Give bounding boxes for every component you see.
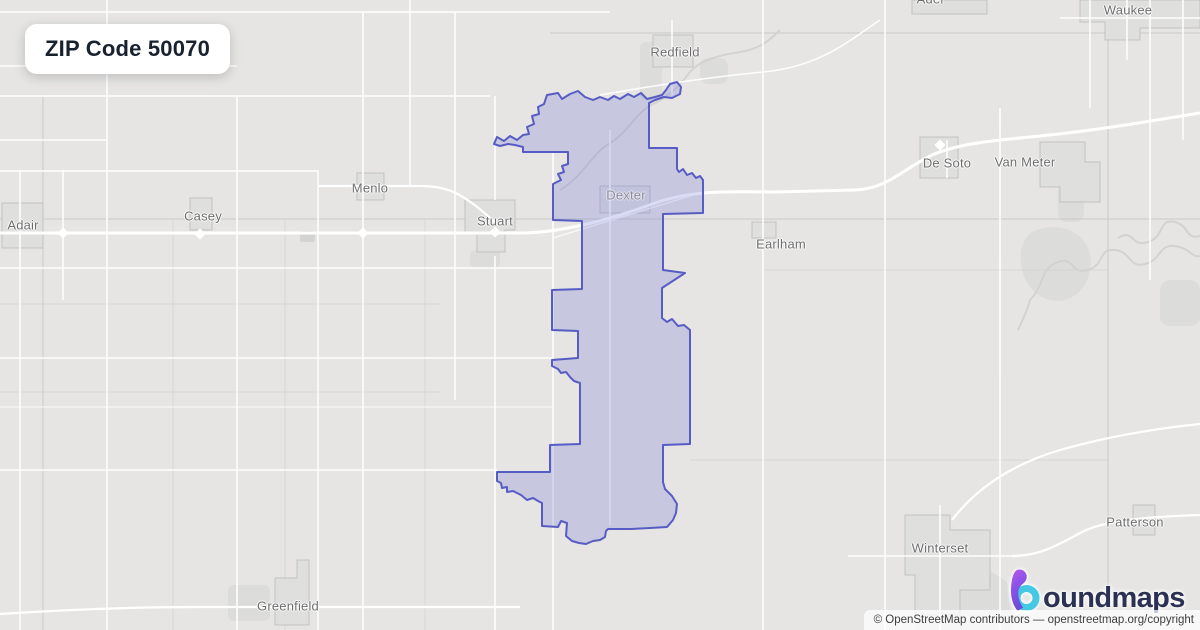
boundmaps-logo-mark <box>1010 569 1042 612</box>
city-label-adair: Adair <box>7 218 38 233</box>
city-label-stuart: Stuart <box>477 214 513 229</box>
city-label-redfield: Redfield <box>650 45 699 60</box>
city-label-van-meter: Van Meter <box>995 155 1056 170</box>
city-label-greenfield: Greenfield <box>257 599 319 614</box>
boundmaps-logo-text: oundmaps <box>1043 584 1185 613</box>
zip-code-title-badge: ZIP Code 50070 <box>25 24 230 74</box>
city-label-dexter: Dexter <box>606 188 646 203</box>
city-label-waukee: Waukee <box>1104 3 1152 18</box>
city-label-adel: Adel <box>917 0 944 7</box>
map-screenshot: Adel Waukee Redfield De Soto Van Meter M… <box>0 0 1200 630</box>
boundmaps-logo: oundmaps <box>1010 569 1185 612</box>
city-label-casey: Casey <box>184 209 222 224</box>
map-canvas <box>0 0 1200 630</box>
city-label-earlham: Earlham <box>756 237 806 252</box>
city-label-patterson: Patterson <box>1106 515 1163 530</box>
osm-attribution: © OpenStreetMap contributors — openstree… <box>864 610 1200 630</box>
city-label-menlo: Menlo <box>352 181 388 196</box>
city-label-winterset: Winterset <box>912 541 969 556</box>
city-label-de-soto: De Soto <box>923 156 971 171</box>
